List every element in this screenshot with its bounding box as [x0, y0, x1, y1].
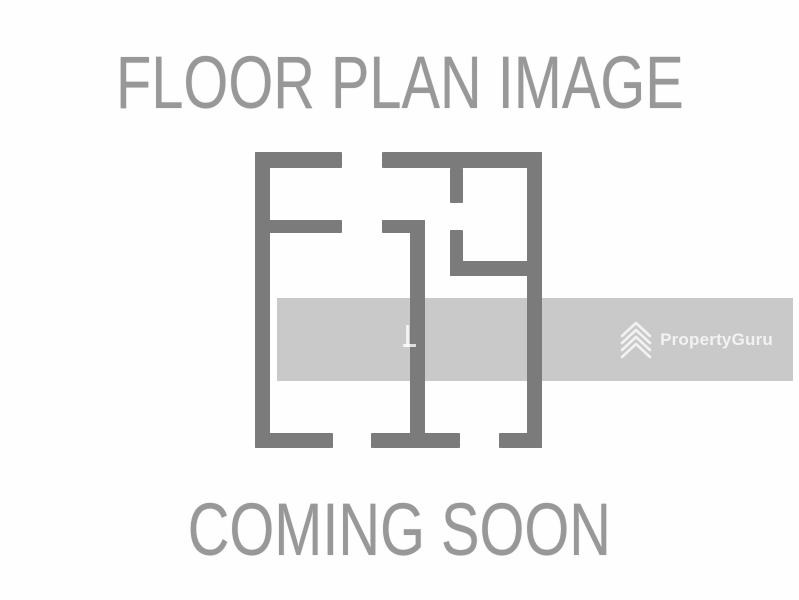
wall-interior-center — [410, 220, 425, 448]
wall-interior-stub-top — [450, 168, 463, 203]
placeholder-bottom-title: COMING SOON — [0, 493, 799, 567]
wall-outer-bottom-left — [255, 433, 333, 448]
watermark-residue-mark — [403, 344, 416, 347]
propertyguru-chevrons-icon — [619, 320, 653, 360]
placeholder-bottom-title-text: COMING SOON — [188, 493, 611, 567]
wall-outer-bottom-right — [499, 433, 542, 448]
wall-outer-right — [527, 152, 542, 448]
wall-interior-room — [450, 261, 542, 276]
wall-outer-top-left — [255, 152, 342, 168]
wall-outer-left — [255, 152, 270, 448]
wall-interior-mid-left — [255, 220, 342, 233]
watermark-brand-label: PropertyGuru — [660, 330, 773, 350]
floor-plan-icon — [255, 152, 542, 448]
wall-outer-top-right — [382, 152, 542, 168]
placeholder-top-title-text: FLOOR PLAN IMAGE — [116, 46, 684, 120]
placeholder-top-title: FLOOR PLAN IMAGE — [0, 46, 799, 120]
floor-plan-image-placeholder: FLOOR PLAN IMAGE PropertyGuru COMING SOO… — [0, 0, 799, 600]
